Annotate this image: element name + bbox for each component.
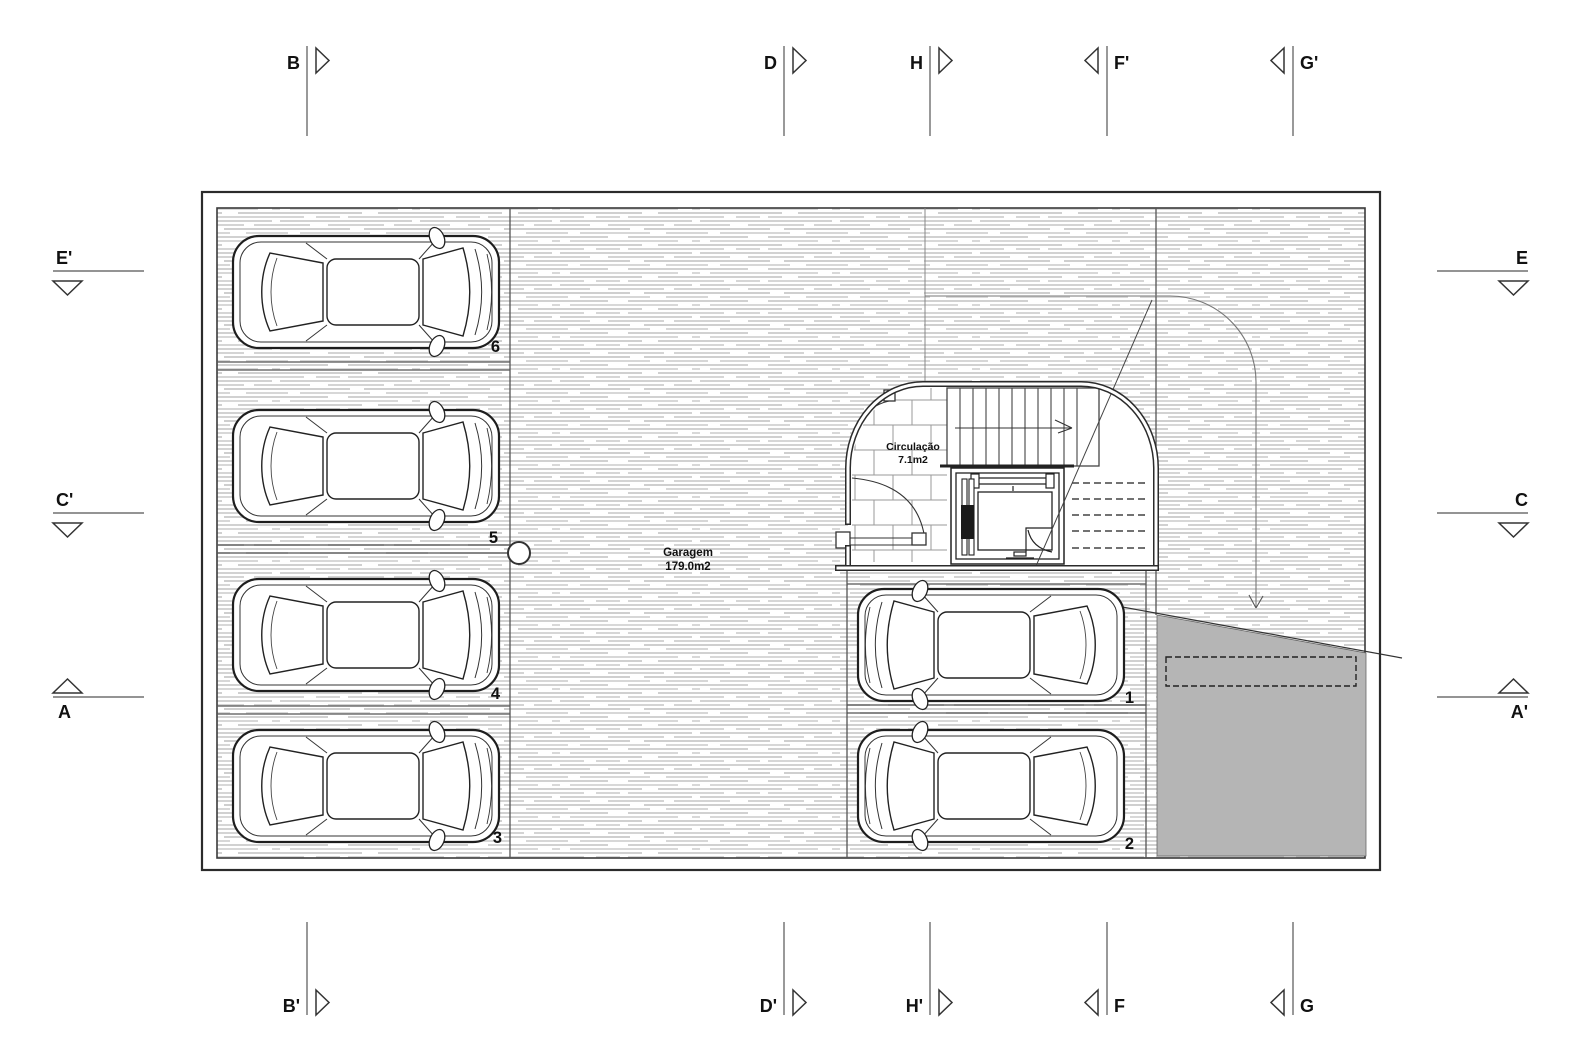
section-label: H' (906, 996, 923, 1016)
section-marker-h-prime-bottom: H' (906, 922, 952, 1016)
section-label: B (287, 53, 300, 73)
section-label: H (910, 53, 923, 73)
section-arrow-right (939, 48, 952, 73)
section-label: A (58, 702, 71, 722)
section-arrow-right (793, 48, 806, 73)
section-marker-g-prime-top: G' (1271, 46, 1318, 136)
section-label: E (1516, 248, 1528, 268)
car-spot-6 (233, 225, 499, 359)
section-marker-b-prime-bottom: B' (283, 922, 329, 1016)
garage-area: 179.0m2 (665, 561, 710, 573)
section-arrow-right (793, 990, 806, 1015)
section-marker-a-left: A (53, 679, 144, 722)
car-spot-4 (233, 568, 499, 702)
elevator (951, 468, 1064, 564)
section-marker-c-right: C (1437, 490, 1528, 537)
section-arrow-down (1499, 281, 1528, 295)
car-spot-5 (233, 399, 499, 533)
floor-plan-canvas: Circulação 7.1m2 6 5 4 3 1 2 Garagem 179… (0, 0, 1572, 1058)
section-arrow-down (53, 523, 82, 537)
spot-number-3: 3 (493, 829, 502, 847)
section-arrow-down (53, 281, 82, 295)
section-marker-b-top: B (287, 46, 329, 136)
section-marker-a-prime-right: A' (1437, 679, 1528, 722)
spot-number-1: 1 (1125, 689, 1134, 707)
section-marker-f-prime-top: F' (1085, 46, 1129, 136)
section-label: B' (283, 996, 300, 1016)
section-label: E' (56, 248, 72, 268)
section-arrow-left (1085, 48, 1098, 73)
garage-name: Garagem (663, 547, 713, 559)
floor-plan-svg: Circulação 7.1m2 6 5 4 3 1 2 Garagem 179… (0, 0, 1572, 1058)
section-marker-e-right: E (1437, 248, 1528, 295)
section-label: D (764, 53, 777, 73)
section-marker-d-prime-bottom: D' (760, 922, 806, 1016)
circulation-area: 7.1m2 (898, 454, 928, 466)
section-label: C' (56, 490, 73, 510)
section-marker-f-bottom: F (1085, 922, 1125, 1016)
section-label: A' (1511, 702, 1528, 722)
section-label: F (1114, 996, 1125, 1016)
stairs (940, 388, 1099, 466)
section-arrow-up (1499, 679, 1528, 693)
car-spot-3 (233, 719, 499, 853)
section-arrow-down (1499, 523, 1528, 537)
spot-number-2: 2 (1125, 835, 1134, 853)
section-marker-e-prime-left: E' (53, 248, 144, 295)
spot-number-4: 4 (491, 685, 501, 703)
car-spot-1 (858, 578, 1124, 712)
section-marker-g-bottom: G (1271, 922, 1314, 1016)
spot-number-6: 6 (491, 338, 500, 356)
section-arrow-up (53, 679, 82, 693)
section-arrow-right (939, 990, 952, 1015)
section-arrow-left (1271, 48, 1284, 73)
section-marker-h-top: H (910, 46, 952, 136)
section-label: D' (760, 996, 777, 1016)
section-arrow-right (316, 990, 329, 1015)
car-spot-2 (858, 719, 1124, 853)
spot-number-5: 5 (489, 529, 498, 547)
section-label: C (1515, 490, 1528, 510)
section-marker-c-prime-left: C' (53, 490, 144, 537)
ramp-surface (1157, 615, 1366, 856)
elevator-guide-rails (961, 479, 974, 555)
section-arrow-left (1271, 990, 1284, 1015)
section-marker-d-top: D (764, 46, 806, 136)
section-arrow-left (1085, 990, 1098, 1015)
structural-column (508, 542, 530, 564)
section-arrow-right (316, 48, 329, 73)
circulation-name: Circulação (886, 441, 940, 453)
section-label: F' (1114, 53, 1129, 73)
section-label: G' (1300, 53, 1318, 73)
section-label: G (1300, 996, 1314, 1016)
